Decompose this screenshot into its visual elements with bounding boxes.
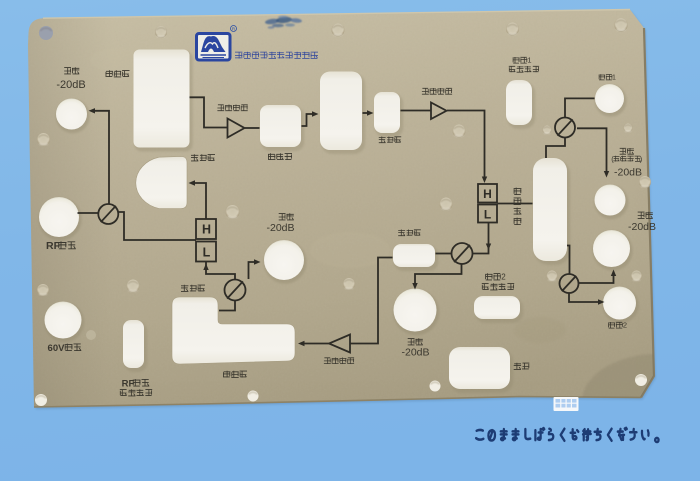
svg-text:-20dB: -20dB [401, 347, 429, 359]
svg-text:H: H [483, 187, 492, 201]
svg-text:L: L [484, 208, 491, 222]
svg-text:1: 1 [527, 56, 531, 65]
svg-text:1: 1 [612, 75, 616, 82]
svg-text:RF: RF [122, 379, 135, 390]
svg-text:-20dB: -20dB [266, 222, 294, 234]
svg-text:2: 2 [623, 321, 627, 330]
svg-text:60V: 60V [48, 343, 66, 354]
svg-text:-20dB: -20dB [56, 79, 85, 91]
svg-text:2: 2 [501, 273, 506, 282]
svg-text:L: L [203, 246, 211, 260]
svg-text:-20dB: -20dB [614, 167, 642, 179]
svg-text:-20dB: -20dB [628, 221, 656, 233]
svg-text:H: H [202, 223, 211, 237]
